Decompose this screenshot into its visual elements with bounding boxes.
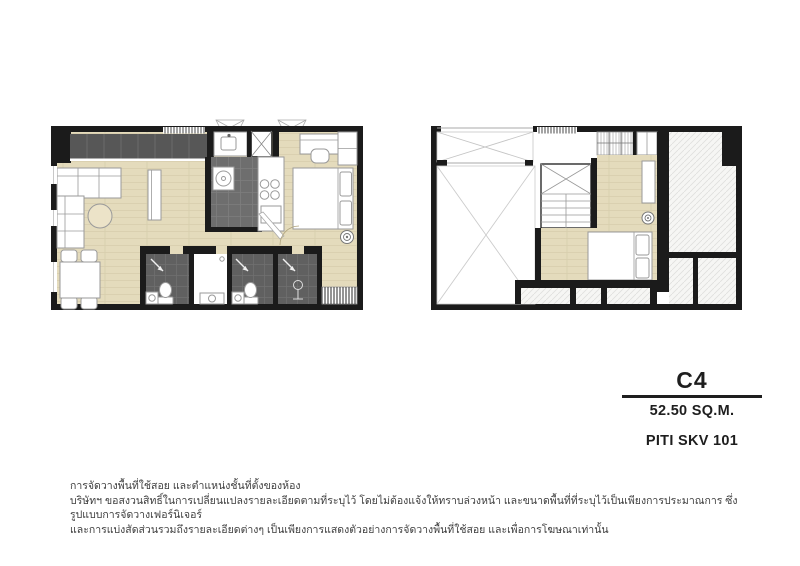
chair xyxy=(61,250,77,262)
project-name: PITI SKV 101 xyxy=(618,433,766,449)
fridge-icon xyxy=(251,131,272,157)
adjacent-area xyxy=(669,132,736,304)
kitchen-counter xyxy=(70,134,207,161)
chair xyxy=(61,297,77,309)
fan-icon xyxy=(341,231,354,244)
toilet-icon xyxy=(158,297,173,304)
vanity xyxy=(232,292,244,304)
shower-room xyxy=(194,254,227,304)
bathroom-1 xyxy=(146,254,189,304)
chair xyxy=(81,297,97,309)
toilet-icon xyxy=(243,297,258,304)
disclaimer-line-1: การจัดวางพื้นที่ใช้สอย และตำแหน่งชั้นที่… xyxy=(70,479,748,494)
dining-table xyxy=(60,262,100,298)
disclaimer-line-2: บริษัทฯ ขอสงวนสิทธิ์ในการเปลี่ยนแปลงรายล… xyxy=(70,494,748,523)
window-ticks xyxy=(537,127,577,134)
corner-wall xyxy=(51,126,71,163)
wardrobe xyxy=(597,132,633,155)
kitchen xyxy=(205,157,284,239)
brochure-page: C4 52.50 SQ.M. PITI SKV 101 การจัดวางพื้… xyxy=(0,0,800,566)
washing-machine-icon xyxy=(213,167,234,190)
wall-stub xyxy=(633,132,637,155)
cabinet xyxy=(642,161,655,203)
unit-name: C4 xyxy=(618,368,766,392)
unit-label-block: C4 52.50 SQ.M. PITI SKV 101 xyxy=(618,368,766,449)
hob-icon xyxy=(258,157,284,231)
shaft-band xyxy=(515,280,657,304)
disclaimer-line-3: และการแบ่งสัดส่วนรวมถึงรายละเอียดต่างๆ เ… xyxy=(70,523,748,538)
ac-ledge-grille xyxy=(322,287,357,304)
dressing-room xyxy=(278,254,317,304)
vanity xyxy=(146,292,158,304)
coffee-table xyxy=(88,204,112,228)
fan-icon xyxy=(642,212,654,224)
bathroom-2 xyxy=(232,254,273,304)
disclaimer: การจัดวางพื้นที่ใช้สอย และตำแหน่งชั้นที่… xyxy=(70,479,748,537)
sink-icon xyxy=(214,132,247,156)
chair xyxy=(81,250,97,262)
tv-console xyxy=(148,170,161,220)
upper-floor-plan xyxy=(428,106,748,314)
unit-area: 52.50 SQ.M. xyxy=(618,403,766,419)
lower-floor-plan xyxy=(48,106,373,314)
bed xyxy=(588,232,652,280)
stair-wall xyxy=(591,158,597,230)
bed xyxy=(293,168,353,229)
chair xyxy=(311,149,329,163)
void-strip xyxy=(437,132,533,166)
window-ticks xyxy=(163,127,205,134)
bedroom-wall xyxy=(657,132,669,292)
unit-divider xyxy=(622,395,762,398)
staircase xyxy=(541,164,591,228)
